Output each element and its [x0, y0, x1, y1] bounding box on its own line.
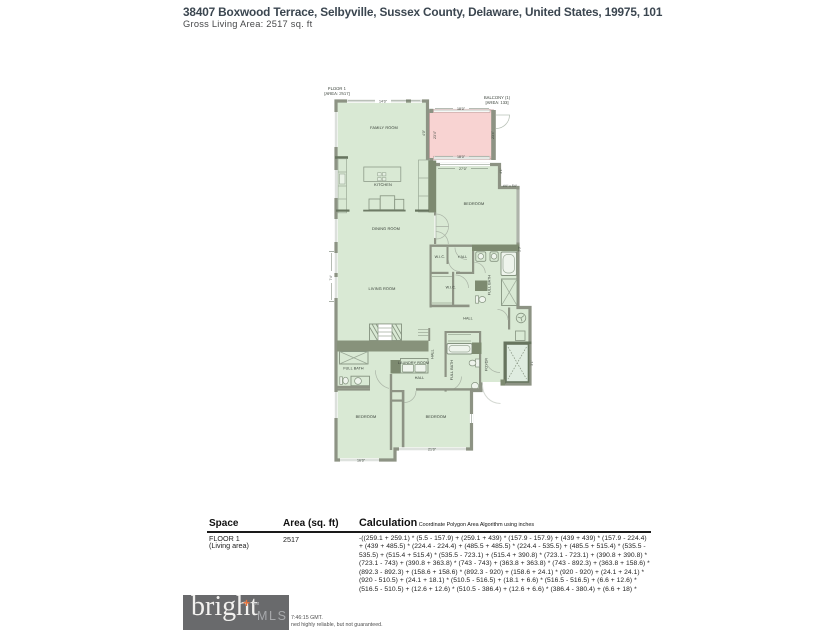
svg-text:FOYER: FOYER	[484, 358, 488, 371]
svg-text:[AREA: 2517]: [AREA: 2517]	[324, 91, 349, 96]
svg-text:HALL: HALL	[431, 349, 435, 359]
svg-text:2'0": 2'0"	[518, 245, 522, 251]
svg-text:4'0" x 5'0": 4'0" x 5'0"	[503, 184, 518, 188]
svg-text:16'0": 16'0"	[357, 459, 366, 463]
svg-text:[AREA: 133]: [AREA: 133]	[485, 100, 508, 105]
svg-text:3'1": 3'1"	[530, 359, 534, 365]
svg-text:23'4": 23'4"	[433, 130, 437, 139]
svg-text:BEDROOM: BEDROOM	[356, 414, 377, 419]
svg-text:27'0": 27'0"	[459, 167, 468, 171]
svg-text:4'0": 4'0"	[422, 129, 426, 136]
svg-text:KITCHEN: KITCHEN	[374, 182, 392, 187]
svg-text:21'0": 21'0"	[428, 448, 437, 452]
svg-text:LAUNDRY ROOM: LAUNDRY ROOM	[398, 361, 429, 365]
svg-text:FULL BATH: FULL BATH	[488, 275, 492, 296]
svg-text:18'0": 18'0"	[457, 155, 466, 159]
svg-text:23'4": 23'4"	[491, 130, 495, 139]
svg-text:HALL: HALL	[463, 317, 473, 321]
svg-text:W.I.C.: W.I.C.	[446, 286, 457, 290]
svg-text:14'0": 14'0"	[379, 99, 388, 103]
svg-text:18'0": 18'0"	[457, 107, 466, 111]
svg-text:BEDROOM: BEDROOM	[426, 414, 447, 419]
svg-text:7'4": 7'4"	[329, 274, 333, 280]
svg-text:FAMILY ROOM: FAMILY ROOM	[370, 125, 398, 130]
svg-text:FULL BATH: FULL BATH	[450, 360, 454, 381]
svg-text:FULL BATH: FULL BATH	[343, 367, 364, 371]
svg-text:4'1": 4'1"	[499, 167, 503, 173]
svg-text:DINING ROOM: DINING ROOM	[372, 226, 400, 231]
svg-text:HALL: HALL	[415, 376, 425, 380]
svg-text:W.I.C.: W.I.C.	[435, 255, 446, 259]
svg-text:LIVING ROOM: LIVING ROOM	[368, 286, 395, 291]
svg-text:BEDROOM: BEDROOM	[464, 201, 485, 206]
